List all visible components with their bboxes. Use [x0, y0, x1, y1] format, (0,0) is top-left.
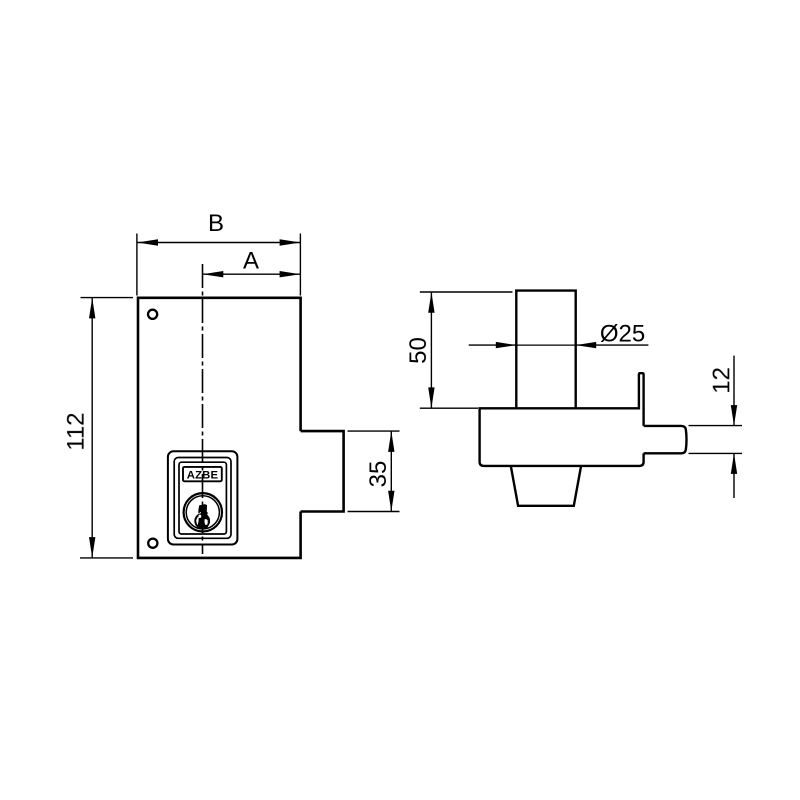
- svg-text:Ø25: Ø25: [600, 321, 645, 348]
- svg-text:12: 12: [708, 367, 735, 394]
- svg-text:A: A: [243, 248, 259, 275]
- svg-text:112: 112: [63, 412, 90, 450]
- svg-text:50: 50: [405, 337, 432, 364]
- svg-text:B: B: [208, 210, 224, 237]
- svg-text:35: 35: [365, 461, 392, 488]
